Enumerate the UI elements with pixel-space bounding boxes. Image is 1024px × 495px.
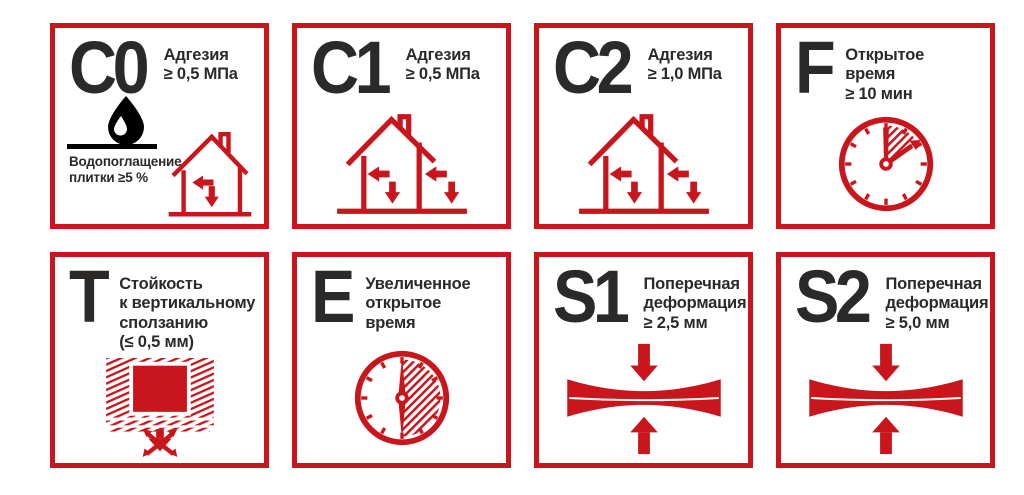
clock-open-time-icon xyxy=(781,104,990,224)
class-description: Увеличенное открытое время xyxy=(355,263,470,333)
class-code: S1 xyxy=(553,263,625,331)
class-description: Адгезия ≥ 0,5 МПа xyxy=(154,34,238,85)
class-code: C1 xyxy=(311,34,387,102)
small-house-icon xyxy=(166,126,254,218)
badge-f: F Открытое время ≥ 10 мин xyxy=(776,23,995,229)
badge-header: C1 Адгезия ≥ 0,5 МПа xyxy=(297,28,506,102)
badge-header: S2 Поперечная деформация ≥ 5,0 мм xyxy=(781,257,990,333)
class-description: Адгезия ≥ 1,0 МПа xyxy=(638,34,722,85)
beam-deformation-icon xyxy=(781,333,990,463)
water-absorption-note: Водопоглащение плитки ≥5 % xyxy=(69,154,181,186)
wall-tile-no-slip-icon xyxy=(55,353,264,463)
class-description: Стойкость к вертикальному сползанию (≤ 0… xyxy=(109,263,255,353)
badge-c2: C2 Адгезия ≥ 1,0 МПа xyxy=(534,23,753,229)
badge-c1: C1 Адгезия ≥ 0,5 МПа xyxy=(292,23,511,229)
badge-header: S1 Поперечная деформация ≥ 2,5 мм xyxy=(539,257,748,333)
badge-c0: C0 Адгезия ≥ 0,5 МПа Водопоглащение плит… xyxy=(50,23,269,229)
class-code: E xyxy=(311,263,351,331)
class-description: Поперечная деформация ≥ 5,0 мм xyxy=(876,263,989,333)
badge-s1: S1 Поперечная деформация ≥ 2,5 мм xyxy=(534,252,753,468)
class-code: F xyxy=(795,34,831,102)
clock-extended-time-icon xyxy=(297,333,506,463)
class-description: Открытое время ≥ 10 мин xyxy=(835,34,924,104)
beam-deformation-icon xyxy=(539,333,748,463)
badge-header: F Открытое время ≥ 10 мин xyxy=(781,28,990,104)
class-code: S2 xyxy=(795,263,867,331)
house-with-arrows-icon xyxy=(297,102,506,224)
class-code: T xyxy=(69,263,105,331)
badge-header: C0 Адгезия ≥ 0,5 МПа xyxy=(55,28,264,102)
water-drop-icon xyxy=(63,94,163,154)
badge-header: T Стойкость к вертикальному сползанию (≤… xyxy=(55,257,264,353)
badge-t: T Стойкость к вертикальному сползанию (≤… xyxy=(50,252,269,468)
class-code: C0 xyxy=(69,34,145,102)
badge-header: E Увеличенное открытое время xyxy=(297,257,506,333)
classification-badges-grid: C0 Адгезия ≥ 0,5 МПа Водопоглащение плит… xyxy=(0,0,1024,468)
badge-header: C2 Адгезия ≥ 1,0 МПа xyxy=(539,28,748,102)
house-with-arrows-icon xyxy=(539,102,748,224)
class-description: Поперечная деформация ≥ 2,5 мм xyxy=(634,263,747,333)
badge-s2: S2 Поперечная деформация ≥ 5,0 мм xyxy=(776,252,995,468)
badge-e: E Увеличенное открытое время xyxy=(292,252,511,468)
class-description: Адгезия ≥ 0,5 МПа xyxy=(396,34,480,85)
class-code: C2 xyxy=(553,34,629,102)
